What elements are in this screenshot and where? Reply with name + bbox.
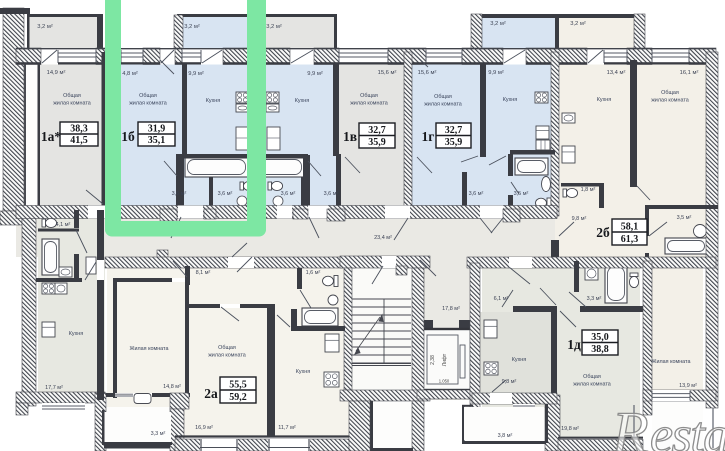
svg-text:жилая комната: жилая комната xyxy=(53,101,91,107)
svg-text:3,3 м²: 3,3 м² xyxy=(587,296,602,302)
svg-text:6,1 м²: 6,1 м² xyxy=(494,296,509,302)
svg-text:estate: estate xyxy=(650,407,725,451)
svg-text:19,8 м²: 19,8 м² xyxy=(561,426,579,432)
svg-text:Кухня: Кухня xyxy=(296,369,311,375)
svg-text:35,1: 35,1 xyxy=(148,135,166,146)
svg-text:Кухня: Кухня xyxy=(597,97,612,103)
svg-text:3,2 м²: 3,2 м² xyxy=(266,24,282,30)
svg-text:59,2: 59,2 xyxy=(229,392,247,403)
svg-text:17,7 м²: 17,7 м² xyxy=(45,385,63,391)
svg-text:61,3: 61,3 xyxy=(621,234,639,245)
svg-text:3,5 м²: 3,5 м² xyxy=(514,191,529,197)
svg-text:Кухня: Кухня xyxy=(295,98,310,104)
svg-text:Жилая комната: Жилая комната xyxy=(652,359,691,365)
svg-text:13,9 м²: 13,9 м² xyxy=(679,383,697,389)
svg-text:2б: 2б xyxy=(596,225,610,240)
svg-text:Общая: Общая xyxy=(661,90,679,96)
svg-text:жилая комната: жилая комната xyxy=(129,101,167,107)
svg-text:1б: 1б xyxy=(121,129,135,144)
svg-text:38,8: 38,8 xyxy=(591,344,609,355)
svg-text:35,9: 35,9 xyxy=(368,137,386,148)
svg-text:35,0: 35,0 xyxy=(591,332,609,343)
svg-text:Кухня: Кухня xyxy=(69,331,84,337)
svg-text:Лифт: Лифт xyxy=(442,353,448,366)
svg-text:16,1 м²: 16,1 м² xyxy=(680,70,699,76)
svg-text:Общая: Общая xyxy=(63,93,81,99)
svg-text:17,8 м²: 17,8 м² xyxy=(442,306,460,312)
svg-text:2,38: 2,38 xyxy=(430,355,436,365)
svg-text:3,6 м²: 3,6 м² xyxy=(172,191,187,197)
svg-text:9,8 м²: 9,8 м² xyxy=(572,216,587,222)
svg-text:31,9: 31,9 xyxy=(148,124,166,135)
svg-text:4,1 м²: 4,1 м² xyxy=(56,222,71,228)
svg-text:3,6 м²: 3,6 м² xyxy=(218,191,233,197)
svg-text:1а*: 1а* xyxy=(41,129,62,144)
svg-text:жилая комната: жилая комната xyxy=(208,353,246,359)
svg-text:Общая: Общая xyxy=(583,374,601,380)
svg-text:58,1: 58,1 xyxy=(621,222,639,233)
svg-text:3,6 м²: 3,6 м² xyxy=(281,191,296,197)
svg-text:55,5: 55,5 xyxy=(229,380,247,391)
svg-text:14,8 м²: 14,8 м² xyxy=(163,384,181,390)
svg-text:3,5 м²: 3,5 м² xyxy=(677,215,692,221)
svg-text:9,9 м²: 9,9 м² xyxy=(188,71,204,77)
svg-text:9,9 м²: 9,9 м² xyxy=(488,70,504,76)
svg-text:1г: 1г xyxy=(422,129,435,144)
svg-text:3,2 м²: 3,2 м² xyxy=(490,21,506,27)
svg-text:16,9 м²: 16,9 м² xyxy=(195,425,213,431)
svg-text:1,8 м²: 1,8 м² xyxy=(581,187,596,193)
svg-text:9,9 м²: 9,9 м² xyxy=(307,71,323,77)
svg-text:жилая комната: жилая комната xyxy=(424,102,462,108)
svg-text:R: R xyxy=(611,400,649,451)
svg-text:Кухня: Кухня xyxy=(206,98,221,104)
svg-text:3,6 м²: 3,6 м² xyxy=(324,191,339,197)
svg-text:13,4 м²: 13,4 м² xyxy=(607,70,626,76)
svg-text:Кухня: Кухня xyxy=(503,97,518,103)
svg-text:32,7: 32,7 xyxy=(445,125,463,136)
svg-text:23,4 м²: 23,4 м² xyxy=(374,235,392,241)
svg-text:Кухня: Кухня xyxy=(512,357,527,363)
svg-text:1,6 м²: 1,6 м² xyxy=(306,270,321,276)
svg-text:1д: 1д xyxy=(567,337,581,352)
svg-text:32,7: 32,7 xyxy=(368,125,386,136)
svg-text:3,3 м²: 3,3 м² xyxy=(151,431,166,437)
svg-text:4,8 м²: 4,8 м² xyxy=(122,71,138,77)
svg-text:2а: 2а xyxy=(204,386,218,401)
svg-text:14,9 м²: 14,9 м² xyxy=(47,70,66,76)
svg-text:41,5: 41,5 xyxy=(70,135,88,146)
svg-text:жилая комната: жилая комната xyxy=(350,101,388,107)
svg-text:Общая: Общая xyxy=(434,94,452,100)
svg-text:11,7 м²: 11,7 м² xyxy=(278,425,296,431)
svg-text:Общая: Общая xyxy=(360,93,378,99)
svg-text:Общая: Общая xyxy=(218,345,236,351)
svg-text:3,8 м²: 3,8 м² xyxy=(498,433,513,439)
svg-text:9,8 м²: 9,8 м² xyxy=(502,379,517,385)
svg-text:Общая: Общая xyxy=(139,93,157,99)
svg-text:3,2 м²: 3,2 м² xyxy=(184,24,200,30)
svg-text:Жилая комната: Жилая комната xyxy=(130,346,169,352)
svg-text:38,3: 38,3 xyxy=(70,124,88,135)
svg-text:жилая комната: жилая комната xyxy=(651,98,689,104)
svg-text:35,9: 35,9 xyxy=(445,137,463,148)
svg-text:15,6 м²: 15,6 м² xyxy=(378,70,397,76)
svg-text:1.050: 1.050 xyxy=(439,379,450,384)
svg-text:8,1 м²: 8,1 м² xyxy=(196,270,211,276)
svg-text:15,6 м²: 15,6 м² xyxy=(418,70,437,76)
svg-text:3,2 м²: 3,2 м² xyxy=(37,24,53,30)
svg-text:3,6 м²: 3,6 м² xyxy=(469,191,484,197)
svg-text:1в: 1в xyxy=(343,129,357,144)
svg-text:3,2 м²: 3,2 м² xyxy=(570,21,586,27)
svg-text:жилая комната: жилая комната xyxy=(573,382,611,388)
